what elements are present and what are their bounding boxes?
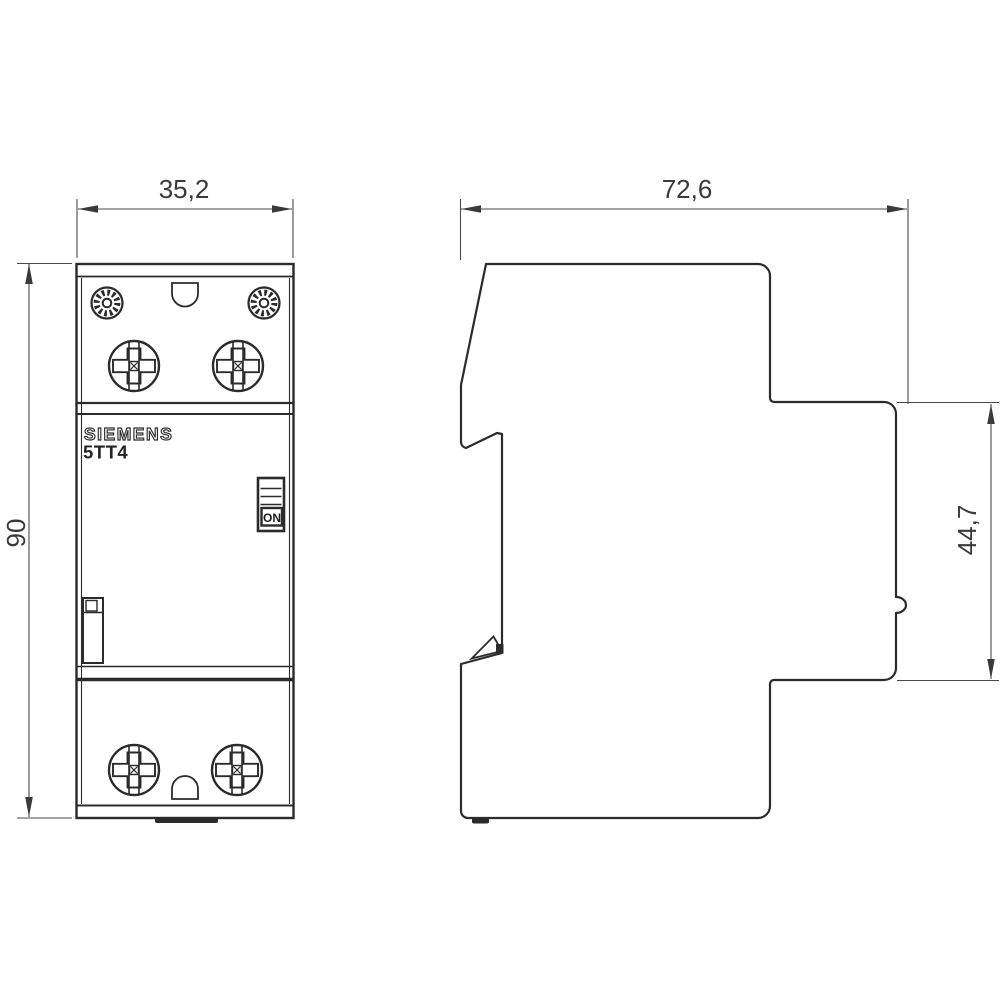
adjustment-screw-top-left bbox=[92, 288, 123, 319]
terminal-screw-top-right bbox=[213, 341, 263, 391]
din-rail-clip-stop bbox=[496, 644, 504, 654]
side-bottom-tab bbox=[472, 818, 489, 824]
arrow-down-icon bbox=[25, 797, 33, 817]
drawing-svg: SIEMENS 5TT4 ON bbox=[0, 0, 1000, 1000]
switch-on-label: ON bbox=[263, 511, 281, 525]
label-holder-notch bbox=[86, 601, 97, 612]
arrow-right-icon bbox=[887, 205, 907, 213]
model-label: 5TT4 bbox=[83, 442, 128, 463]
adjustment-screw-top-right bbox=[249, 288, 280, 319]
front-outline bbox=[77, 264, 294, 818]
toggle-switch[interactable]: ON bbox=[258, 478, 284, 531]
bottom-center-dome bbox=[172, 776, 198, 799]
top-center-cutout bbox=[172, 283, 198, 307]
front-bottom-tab bbox=[155, 818, 218, 823]
label-holder bbox=[83, 598, 103, 663]
dim-value-front-section-depth: 44,7 bbox=[952, 505, 982, 556]
arrow-left-icon bbox=[461, 205, 481, 213]
dimension-front-section-depth: 44,7 bbox=[897, 403, 999, 681]
dim-value-total-depth: 72,6 bbox=[662, 174, 713, 204]
arrow-left-icon bbox=[78, 205, 98, 213]
arrow-up-icon bbox=[987, 404, 995, 424]
arrow-up-icon bbox=[25, 264, 33, 284]
terminal-screw-bottom-left bbox=[109, 745, 159, 795]
dimension-overall-height: 90 bbox=[1, 264, 72, 819]
dimension-front-width: 35,2 bbox=[77, 174, 293, 258]
technical-drawing: SIEMENS 5TT4 ON bbox=[0, 0, 1000, 1000]
front-view: SIEMENS 5TT4 ON bbox=[77, 264, 294, 823]
arrow-right-icon bbox=[272, 205, 292, 213]
dim-value-front-width: 35,2 bbox=[159, 174, 210, 204]
side-profile bbox=[461, 264, 906, 818]
terminal-screw-bottom-right bbox=[212, 745, 262, 795]
arrow-down-icon bbox=[987, 659, 995, 679]
side-view bbox=[461, 264, 906, 824]
terminal-screw-top-left bbox=[109, 341, 159, 391]
dim-value-overall-height: 90 bbox=[1, 519, 31, 548]
